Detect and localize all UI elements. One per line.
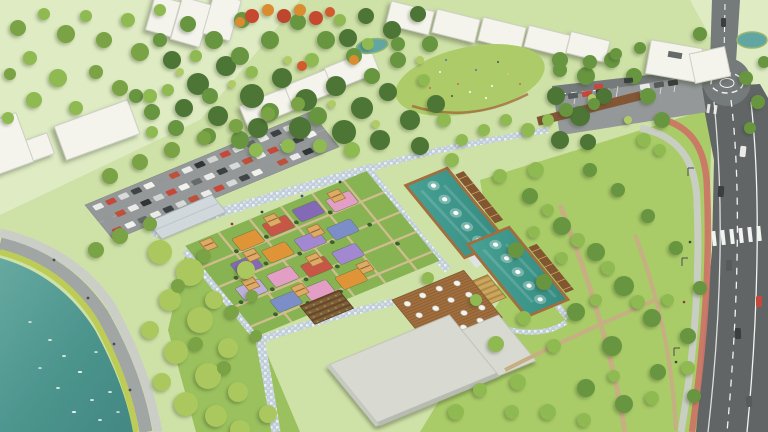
light-overlay: [0, 0, 768, 432]
park-aerial-render: [0, 0, 768, 432]
render-viewport: [0, 0, 768, 432]
